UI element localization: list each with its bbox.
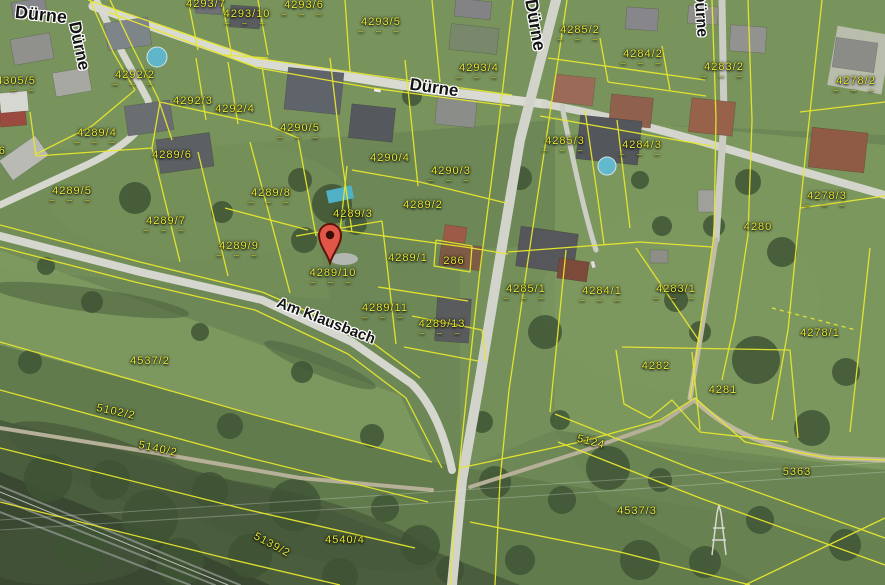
map-marker[interactable] [330, 263, 382, 307]
marker-pin-dot [326, 231, 334, 239]
map-viewport[interactable]: 4293/74293/10– – –4293/6– – –4293/5– – –… [0, 0, 885, 585]
aerial-map[interactable] [0, 0, 885, 585]
